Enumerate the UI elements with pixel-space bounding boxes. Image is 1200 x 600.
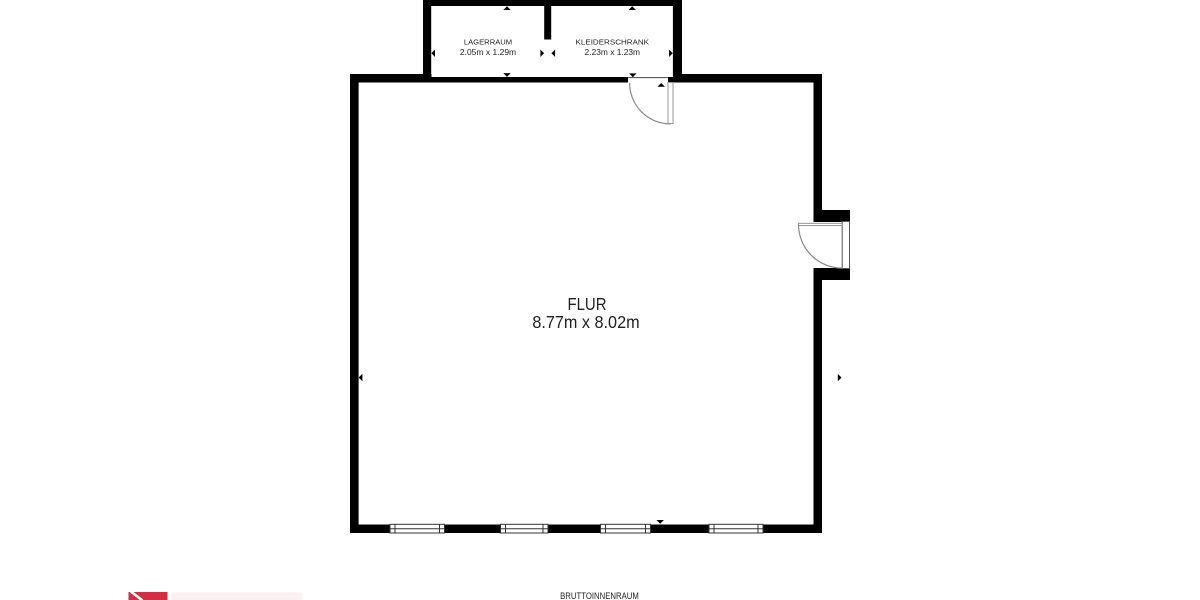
svg-text:2.05m x 1.29m: 2.05m x 1.29m (460, 48, 516, 57)
svg-text:KLEIDERSCHRANK: KLEIDERSCHRANK (576, 38, 650, 47)
svg-text:FLUR: FLUR (568, 294, 607, 314)
svg-text:8.77m x 8.02m: 8.77m x 8.02m (532, 312, 639, 332)
svg-text:LAGERRAUM: LAGERRAUM (464, 38, 512, 47)
svg-text:BRUTTOINNENRAUM: BRUTTOINNENRAUM (560, 591, 639, 600)
svg-text:2.23m x 1.23m: 2.23m x 1.23m (585, 48, 641, 57)
